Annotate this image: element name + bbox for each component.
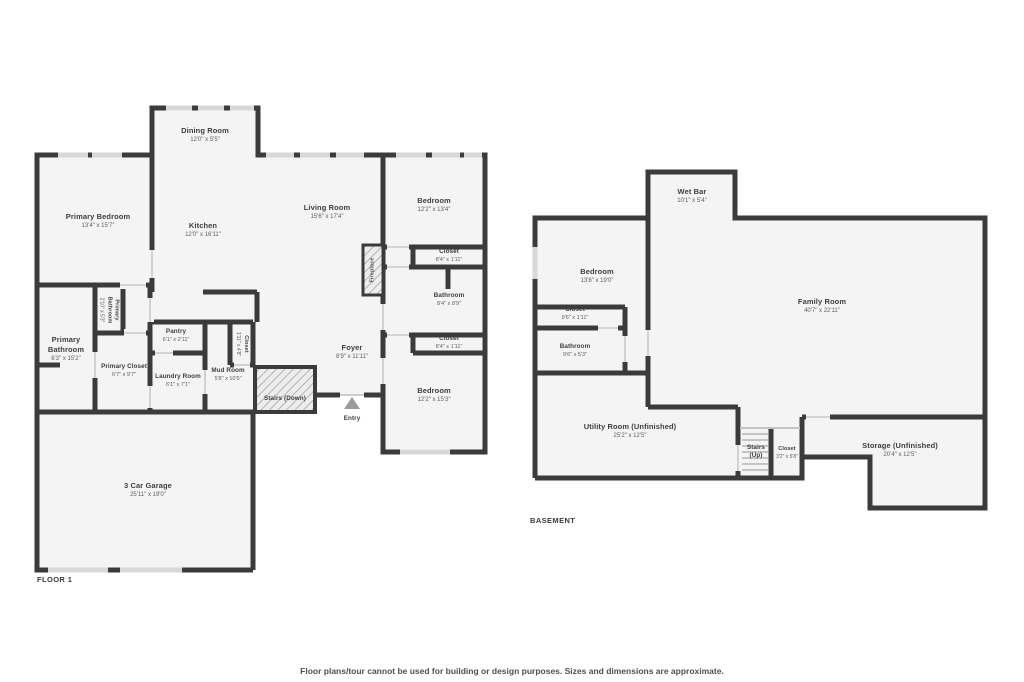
room-name: Utility Room (Unfinished) — [584, 422, 677, 432]
room-name: Primary Closet — [101, 363, 147, 371]
room-name: Laundry Room — [155, 373, 201, 381]
room-label-fireplace: Fireplace — [369, 257, 376, 282]
room-dims: 12'0" x 16'11" — [185, 232, 221, 239]
room-dims: 2'10" x 5'3" — [98, 298, 104, 323]
room-label-basement-bedroom: Bedroom 13'8" x 19'0" — [580, 267, 614, 285]
floor1-title: FLOOR 1 — [37, 575, 72, 584]
room-name: Bathroom — [560, 343, 591, 351]
room-dims: 40'7" x 22'11" — [804, 308, 840, 315]
room-label-bathroom-1: Bathroom 8'4" x 8'9" — [434, 292, 465, 308]
room-dims: 12'0" x 5'5" — [190, 137, 220, 144]
basement-title: BASEMENT — [530, 516, 575, 525]
floorplan-graphic — [0, 0, 1024, 682]
room-dims: 10'1" x 5'4" — [677, 198, 707, 205]
room-label-foyer: Foyer 8'9" x 11'11" — [336, 343, 368, 361]
room-dims: 6'7" x 9'7" — [112, 372, 136, 379]
room-name: Bedroom — [417, 196, 451, 206]
room-name: Living Room — [304, 203, 351, 213]
room-label-stairs-up: Stairs (Up) — [743, 444, 769, 460]
room-dims: 15'6" x 17'4" — [311, 214, 344, 221]
room-name: Primary Bathroom — [40, 335, 92, 355]
room-label-primary-bathroom: Primary Bathroom 6'3" x 15'2" — [40, 335, 92, 363]
room-label-stairs-down: Stairs (Down) — [264, 395, 306, 403]
room-label-bedroom-2: Bedroom 12'2" x 15'3" — [417, 386, 451, 404]
entry-arrow-icon — [344, 397, 360, 409]
room-label-primary-bedroom: Primary Bedroom 13'4" x 15'7" — [66, 212, 130, 230]
room-name: Primary Bathroom — [105, 290, 119, 330]
room-label-basement-closet-2: Closet 3'2" x 5'8" — [773, 446, 801, 460]
room-dims: 1'11" x 4'8" — [235, 332, 241, 356]
room-label-mud-room: Mud Room 5'8" x 10'5" — [211, 367, 244, 383]
room-name: Stairs (Up) — [743, 444, 769, 460]
room-label-primary-closet: Primary Closet 6'7" x 9'7" — [101, 363, 147, 379]
disclaimer-text: Floor plans/tour cannot be used for buil… — [0, 666, 1024, 676]
room-name: Foyer — [342, 343, 363, 353]
room-name: Primary Bedroom — [66, 212, 130, 222]
room-dims: 8'4" x 8'9" — [437, 301, 461, 308]
room-label-utility-room: Utility Room (Unfinished) 25'2" x 12'5" — [584, 422, 677, 440]
room-label-storage: Storage (Unfinished) 20'4" x 12'5" — [862, 441, 938, 459]
floor1-floor-fill — [37, 108, 485, 570]
room-dims: 13'4" x 15'7" — [82, 223, 115, 230]
room-label-laundry-room: Laundry Room 6'1" x 7'1" — [155, 373, 201, 389]
room-dims: 12'2" x 15'3" — [418, 397, 451, 404]
room-dims: 6'1" x 7'1" — [166, 382, 190, 389]
room-name: Closet — [242, 335, 249, 352]
room-name: Bedroom — [417, 386, 451, 396]
stairs-down-hatch — [255, 367, 315, 412]
room-label-entry: Entry — [344, 415, 361, 423]
room-name: Mud Room — [211, 367, 244, 375]
room-label-basement-closet-1: Closet 9'6" x 1'11" — [562, 306, 589, 322]
room-name: Entry — [344, 415, 361, 423]
room-dims: 20'4" x 12'5" — [884, 452, 917, 459]
room-label-pantry: Pantry 6'1" x 2'11" — [163, 328, 190, 344]
room-label-living-room: Living Room 15'6" x 17'4" — [304, 203, 351, 221]
room-name: Closet — [439, 335, 459, 343]
room-dims: 8'4" x 1'11" — [436, 344, 463, 351]
floor1-plan — [37, 106, 485, 573]
floor-plan-page: Primary Bedroom 13'4" x 15'7" Dining Roo… — [0, 0, 1024, 682]
room-label-basement-bathroom: Bathroom 9'6" x 5'3" — [560, 343, 591, 359]
room-name: Closet — [439, 248, 459, 256]
room-label-family-room: Family Room 40'7" x 22'11" — [798, 297, 846, 315]
room-dims: 25'2" x 12'5" — [614, 433, 647, 440]
room-name: Bathroom — [434, 292, 465, 300]
room-dims: 5'8" x 10'5" — [214, 376, 241, 383]
room-label-closet-2: Closet 8'4" x 1'11" — [436, 335, 463, 351]
room-name: Family Room — [798, 297, 846, 307]
room-dims: 12'2" x 13'4" — [418, 207, 451, 214]
room-dims: 25'11" x 19'0" — [130, 492, 166, 499]
room-dims: 8'4" x 1'11" — [436, 257, 463, 264]
room-name: Stairs (Down) — [264, 395, 306, 403]
room-name: Storage (Unfinished) — [862, 441, 938, 451]
room-dims: 6'3" x 15'2" — [51, 356, 81, 363]
room-label-kitchen: Kitchen 12'0" x 16'11" — [185, 221, 221, 239]
room-name: Closet — [565, 306, 585, 314]
room-name: Kitchen — [189, 221, 217, 231]
room-dims: 8'9" x 11'11" — [336, 354, 368, 361]
room-name: Bedroom — [580, 267, 614, 277]
room-name: Dining Room — [181, 126, 229, 136]
room-name: Pantry — [166, 328, 186, 336]
room-dims: 9'6" x 1'11" — [562, 315, 589, 322]
room-dims: 6'1" x 2'11" — [163, 337, 190, 344]
room-label-closet-1: Closet 8'4" x 1'11" — [436, 248, 463, 264]
room-label-garage: 3 Car Garage 25'11" x 19'0" — [124, 481, 172, 499]
room-name: Closet — [778, 446, 795, 453]
room-label-closet-3: Closet 1'11" x 4'8" — [235, 332, 249, 356]
room-dims: 3'2" x 5'8" — [776, 454, 798, 460]
room-dims: 13'8" x 19'0" — [581, 278, 614, 285]
basement-bedroom-window — [533, 247, 538, 279]
room-label-bedroom-1: Bedroom 12'2" x 13'4" — [417, 196, 451, 214]
room-dims: 9'6" x 5'3" — [563, 352, 587, 359]
room-name: Fireplace — [369, 257, 376, 282]
room-name: 3 Car Garage — [124, 481, 172, 491]
room-name: Wet Bar — [678, 187, 707, 197]
room-label-wet-bar: Wet Bar 10'1" x 5'4" — [677, 187, 707, 205]
room-label-dining-room: Dining Room 12'0" x 5'5" — [181, 126, 229, 144]
room-label-primary-bathroom-small: Primary Bathroom 2'10" x 5'3" — [98, 290, 119, 330]
